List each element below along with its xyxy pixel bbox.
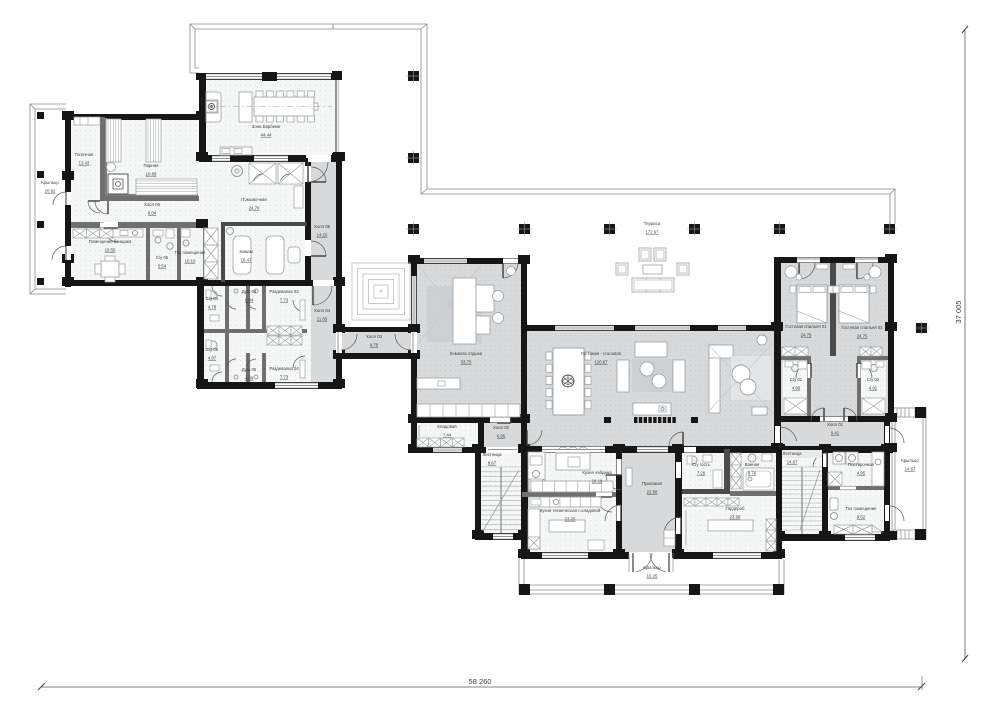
svg-text:13.43: 13.43 bbox=[79, 161, 90, 166]
svg-text:22.58: 22.58 bbox=[647, 490, 658, 495]
svg-text:14.67: 14.67 bbox=[787, 460, 798, 465]
svg-text:С/у 05: С/у 05 bbox=[206, 347, 219, 352]
svg-text:Кухня техническая с кладовой: Кухня техническая с кладовой bbox=[540, 508, 601, 513]
svg-text:16.47: 16.47 bbox=[241, 258, 252, 263]
svg-text:Постирочная: Постирочная bbox=[848, 462, 875, 467]
svg-text:Хамам: Хамам bbox=[239, 249, 253, 254]
svg-text:С/у гость: С/у гость bbox=[692, 462, 711, 467]
svg-text:Гардероб: Гардероб bbox=[726, 506, 745, 511]
svg-text:С/у 06: С/у 06 bbox=[156, 255, 169, 260]
svg-text:Душ 04: Душ 04 bbox=[242, 289, 257, 294]
svg-text:Холл 01: Холл 01 bbox=[827, 422, 844, 427]
svg-text:Крыльцо: Крыльцо bbox=[643, 565, 661, 570]
svg-text:Лестница: Лестница bbox=[483, 452, 503, 457]
svg-text:14.67: 14.67 bbox=[905, 467, 916, 472]
svg-text:9.41: 9.41 bbox=[831, 431, 840, 436]
svg-text:4.06: 4.06 bbox=[245, 376, 254, 381]
svg-text:Гостевая спальня 02: Гостевая спальня 02 bbox=[841, 325, 883, 330]
svg-text:С/у 04: С/у 04 bbox=[206, 296, 219, 301]
svg-text:10.10: 10.10 bbox=[185, 259, 196, 264]
svg-text:7.29: 7.29 bbox=[697, 471, 706, 476]
svg-text:7.73: 7.73 bbox=[280, 298, 289, 303]
svg-text:Терраса: Терраса bbox=[644, 221, 661, 226]
svg-text:Гостевая спальня 01: Гостевая спальня 01 bbox=[785, 324, 827, 329]
svg-text:Холл 04: Холл 04 bbox=[314, 308, 331, 313]
svg-text:С/у 01: С/у 01 bbox=[790, 377, 803, 382]
svg-text:8.70: 8.70 bbox=[370, 343, 379, 348]
svg-text:10.25: 10.25 bbox=[647, 574, 658, 579]
svg-text:7.44: 7.44 bbox=[443, 433, 452, 438]
svg-text:24.70: 24.70 bbox=[249, 206, 260, 211]
svg-text:Прихожая: Прихожая bbox=[642, 481, 663, 486]
svg-text:Гостиная - столовая: Гостиная - столовая bbox=[581, 351, 622, 356]
svg-text:Кладовая: Кладовая bbox=[437, 424, 457, 429]
svg-text:8.67: 8.67 bbox=[488, 461, 497, 466]
svg-text:5.54: 5.54 bbox=[158, 264, 167, 269]
svg-text:44.44: 44.44 bbox=[261, 133, 272, 138]
svg-text:Раздевалка 04: Раздевалка 04 bbox=[269, 366, 299, 371]
svg-text:37 005: 37 005 bbox=[954, 301, 963, 324]
svg-text:Комната отдыха: Комната отдыха bbox=[450, 351, 483, 356]
svg-text:23.68: 23.68 bbox=[730, 515, 741, 520]
svg-text:Холл 02: Холл 02 bbox=[493, 425, 510, 430]
svg-text:4.91: 4.91 bbox=[869, 386, 878, 391]
svg-text:24.75: 24.75 bbox=[801, 333, 812, 338]
svg-text:Ванная: Ванная bbox=[745, 462, 760, 467]
svg-text:Крыльцо: Крыльцо bbox=[41, 180, 59, 185]
svg-text:11.85: 11.85 bbox=[317, 317, 328, 322]
svg-text:18.19: 18.19 bbox=[592, 479, 603, 484]
svg-text:4.78: 4.78 bbox=[208, 305, 217, 310]
svg-text:Холл 06: Холл 06 bbox=[144, 202, 161, 207]
svg-text:Тех помещение: Тех помещение bbox=[845, 506, 877, 511]
svg-text:6.04: 6.04 bbox=[245, 298, 254, 303]
svg-text:10.89: 10.89 bbox=[146, 172, 157, 177]
svg-text:Лестница: Лестница bbox=[783, 451, 803, 456]
svg-text:С/у 02: С/у 02 bbox=[867, 377, 880, 382]
svg-text:23.25: 23.25 bbox=[565, 517, 576, 522]
svg-text:19.55: 19.55 bbox=[105, 248, 116, 253]
svg-text:Зона Барбекю: Зона Барбекю bbox=[252, 124, 281, 129]
svg-text:120.67: 120.67 bbox=[594, 360, 608, 365]
svg-text:Раздевалка 03: Раздевалка 03 bbox=[269, 289, 299, 294]
svg-text:4.96: 4.96 bbox=[792, 386, 801, 391]
svg-text:Холл 03: Холл 03 bbox=[366, 334, 383, 339]
svg-text:24.75: 24.75 bbox=[857, 334, 868, 339]
svg-text:4.95: 4.95 bbox=[857, 471, 866, 476]
svg-text:4.87: 4.87 bbox=[208, 356, 217, 361]
svg-text:9.62: 9.62 bbox=[857, 515, 866, 520]
svg-text:20.92: 20.92 bbox=[45, 189, 56, 194]
svg-text:33.75: 33.75 bbox=[461, 360, 472, 365]
svg-text:6.04: 6.04 bbox=[148, 211, 157, 216]
svg-text:Помывочная: Помывочная bbox=[241, 197, 267, 202]
svg-text:Кухня чабдина: Кухня чабдина bbox=[582, 470, 612, 475]
svg-text:172.67: 172.67 bbox=[645, 230, 659, 235]
svg-text:Парная: Парная bbox=[144, 163, 160, 168]
svg-text:Тех помещение: Тех помещение bbox=[174, 250, 206, 255]
svg-text:Крыльцо: Крыльцо bbox=[901, 458, 919, 463]
svg-text:6.95: 6.95 bbox=[497, 434, 506, 439]
svg-text:Душ 05: Душ 05 bbox=[242, 367, 257, 372]
svg-text:Топочная: Топочная bbox=[75, 152, 94, 157]
svg-text:7.73: 7.73 bbox=[280, 375, 289, 380]
svg-text:8.76: 8.76 bbox=[748, 471, 757, 476]
svg-text:Помещение банщика: Помещение банщика bbox=[89, 239, 132, 244]
svg-text:58 260: 58 260 bbox=[469, 677, 492, 686]
svg-text:Холл 05: Холл 05 bbox=[314, 224, 331, 229]
svg-text:14.16: 14.16 bbox=[317, 233, 328, 238]
